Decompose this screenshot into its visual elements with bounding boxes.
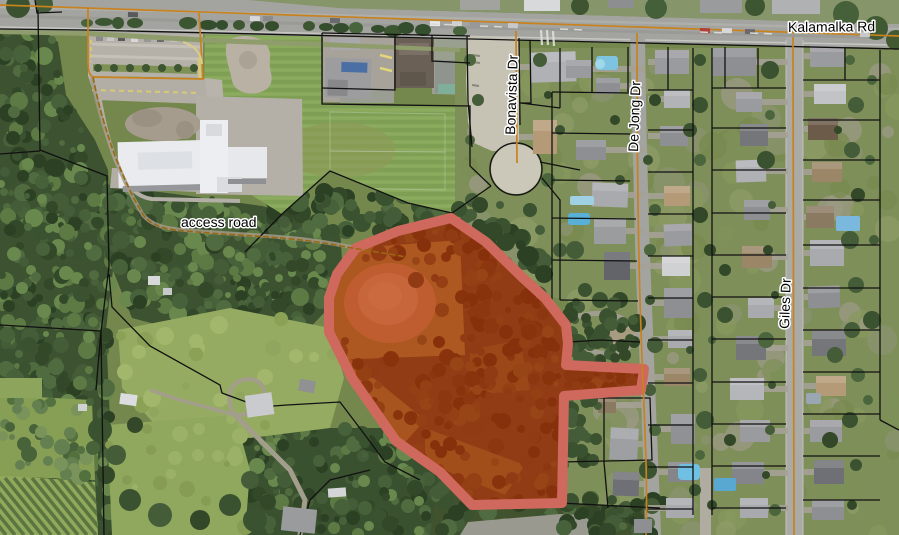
svg-text:Kalamalka Rd: Kalamalka Rd <box>788 18 875 35</box>
svg-text:access road: access road <box>181 214 256 230</box>
svg-text:Bonavista Dr: Bonavista Dr <box>502 54 521 135</box>
svg-text:Giles Dr: Giles Dr <box>776 278 794 329</box>
svg-text:De Jong Dr: De Jong Dr <box>625 80 643 152</box>
